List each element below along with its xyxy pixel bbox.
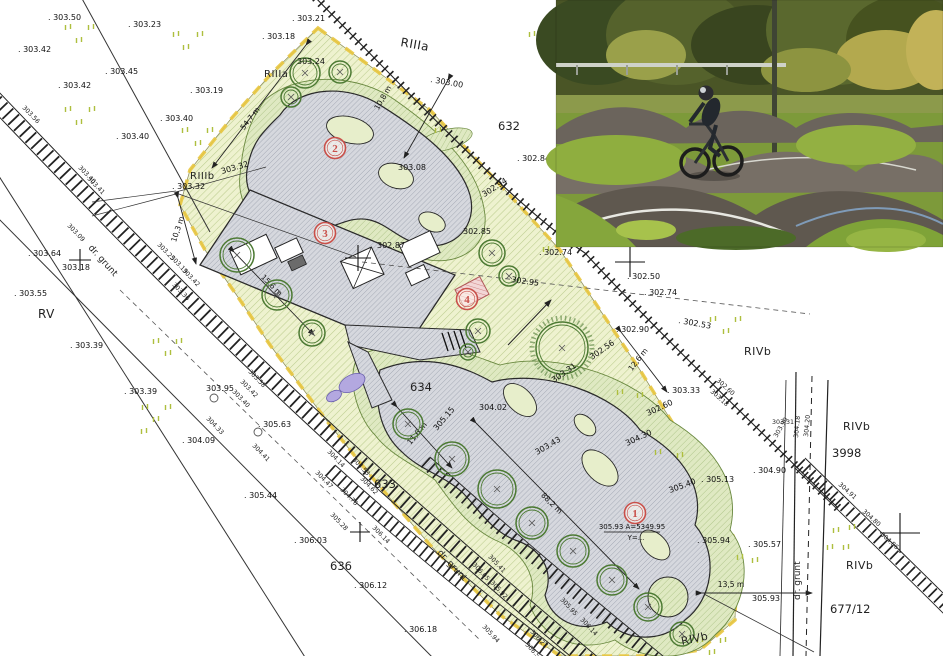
elevation-label: 303.18: [62, 263, 90, 272]
grass-tuft: [736, 316, 741, 322]
elevation-label: . 302.74: [539, 248, 572, 257]
parcel-number-label: 633: [374, 477, 396, 491]
photo-shadow: [676, 226, 796, 250]
zone-label: RIIIa: [399, 35, 430, 54]
elevation-label: 303.95: [206, 384, 234, 393]
elevation-label: . 306.18: [404, 625, 437, 634]
dimension-label: 10,3 m: [169, 215, 186, 243]
elevation-label: . 303.39: [70, 341, 103, 350]
zone-label: RIIIb: [190, 171, 215, 182]
photo-guardrail-post: [676, 65, 678, 75]
elevation-label: . 304.90: [753, 466, 786, 475]
road-elevation-label: 304.91: [837, 481, 858, 501]
elevation-label: . 303.42: [58, 81, 91, 90]
site-plan-svg: 54,7 m10,8 m10,3 m15,6 m11,6 m12,6 m88,2…: [0, 0, 943, 656]
survey-cross: [350, 522, 370, 542]
photo-grass-patch: [796, 125, 916, 165]
elevation-label: . 303.32: [172, 182, 205, 191]
grass-tuft: [196, 140, 201, 146]
elevation-label: 302.85: [463, 227, 491, 236]
grass-tuft: [66, 24, 71, 30]
parcel-number-label: 632: [498, 119, 520, 133]
grass-tuft: [198, 31, 203, 37]
photo-inset: [536, 0, 943, 252]
grass-tuft: [142, 428, 147, 434]
elevation-label: . 303.19: [190, 86, 223, 95]
grass-tuft: [710, 649, 715, 655]
elevation-label: . 306.03: [294, 536, 327, 545]
marker-number: 2: [332, 143, 338, 155]
elevation-label: . 304.09: [182, 436, 215, 445]
zone-label: RV: [38, 307, 55, 321]
grass-tuft: [154, 338, 159, 344]
photo-utility-pole: [772, 0, 777, 172]
road-elevation-label: 303.09: [66, 223, 86, 244]
road-right-line: [820, 380, 828, 656]
photo-grass-highlight: [846, 228, 926, 252]
road-elevation-label: 305.28: [329, 512, 349, 533]
marker-number: 3: [322, 228, 328, 240]
zone-label: RIVb: [846, 559, 873, 572]
road-name-label: dr. grunt: [793, 561, 803, 600]
elevation-label: . 305.57: [748, 540, 781, 549]
photo-guardrail-post: [626, 65, 628, 75]
grass-tuft: [844, 544, 849, 550]
road-elevation-label: 304.18: [793, 416, 802, 439]
elevation-label: . 305.94: [697, 536, 730, 545]
marker-number: 1: [632, 508, 638, 520]
elevation-label: 302.87: [377, 241, 405, 250]
grass-tuft: [721, 637, 726, 643]
grass-tuft: [89, 24, 94, 30]
photo-grass-highlight: [616, 220, 676, 240]
grass-tuft: [90, 106, 95, 112]
cyclist-helmet: [699, 86, 714, 101]
site-plan-page: 54,7 m10,8 m10,3 m15,6 m11,6 m12,6 m88,2…: [0, 0, 943, 656]
benchmark-annotation-line2: Y=...: [627, 534, 645, 542]
elevation-label: . 306.12: [354, 581, 387, 590]
elevation-label: . 302.74: [644, 288, 677, 297]
elevation-label: . 302.90: [616, 325, 649, 334]
grass-tuft: [828, 544, 833, 550]
elevation-label: . 303.45: [105, 67, 138, 76]
road-f-edge: [795, 468, 943, 615]
elevation-label: . 303.55: [14, 289, 47, 298]
grass-tuft: [177, 338, 182, 344]
grass-tuft: [77, 37, 82, 43]
photo-guardrail-post: [726, 65, 728, 75]
zone-label: RIIIa: [264, 69, 288, 80]
photo-guardrail: [556, 63, 786, 67]
elevation-label: 303.08: [398, 163, 426, 172]
grass-tuft: [166, 350, 171, 356]
cyclist-helmet-highlight: [700, 87, 706, 93]
elevation-label: . 303.50: [48, 13, 81, 22]
elevation-label: . 303.33: [667, 386, 700, 395]
elevation-label: . 305.63: [258, 420, 291, 429]
road-right-line: [793, 372, 796, 656]
elevation-label: 305.93: [752, 594, 780, 603]
track-loop-hole: [648, 577, 688, 617]
grass-tuft: [208, 127, 213, 133]
road-elevation-label: 303.36: [171, 282, 191, 303]
elevation-label: 303.24: [297, 57, 325, 66]
photo-grass-patch: [546, 135, 686, 185]
photo-guardrail-post: [576, 65, 578, 75]
grass-tuft: [184, 44, 189, 50]
grass-tuft: [724, 328, 729, 334]
road-elevation-label: 305.94: [481, 624, 501, 645]
elevation-label: . 302.53: [678, 316, 712, 331]
point-symbol: [210, 394, 218, 402]
road-elevation-label: 306.14: [371, 525, 391, 546]
zone-label: RIVb: [843, 420, 870, 433]
zone-label: RIVb: [744, 345, 771, 358]
point-symbol: [254, 428, 262, 436]
parcel-number-label: 3998: [832, 446, 861, 460]
grass-tuft: [834, 527, 839, 533]
elevation-label: . 303.40: [116, 132, 149, 141]
elevation-label: . 303.21: [292, 14, 325, 23]
elevation-label: . 303.00: [430, 75, 464, 90]
grass-tuft: [66, 106, 71, 112]
grass-tuft: [753, 557, 758, 563]
elevation-label: . 305.44: [244, 491, 277, 500]
dimension-label: 13,5 m: [718, 580, 744, 589]
road-elevation-label: 304.33: [205, 416, 225, 437]
road-elevation-label: 304.41: [251, 443, 271, 464]
grass-tuft: [166, 404, 171, 410]
photo-autumn-foliage: [606, 30, 686, 80]
elevation-label: . 303.23: [128, 20, 161, 29]
marker-number: 4: [464, 294, 470, 306]
grass-tuft: [174, 31, 179, 37]
road-elevation-label: 303.42: [181, 268, 201, 289]
benchmark-annotation-line1: 305.93 A=5349.95: [599, 523, 665, 531]
elevation-label: . 303.42: [18, 45, 51, 54]
elevation-label: . 303.39: [124, 387, 157, 396]
parcel-number-label: 634: [410, 380, 432, 394]
elevation-label: 304.02: [479, 403, 507, 412]
elevation-label: . 302.84: [517, 154, 550, 163]
road-elevation-label: 304.80: [861, 508, 882, 528]
grass-tuft: [530, 31, 535, 37]
parcel-number-label: 636: [330, 559, 352, 573]
grass-tuft: [183, 127, 188, 133]
elevation-label: . 303.18: [262, 32, 295, 41]
parcel-number-label: 677/12: [830, 602, 870, 616]
elevation-label: . 303.64: [28, 249, 61, 258]
road-name-label: dr. grunt: [86, 243, 120, 279]
elevation-label: . 302.50: [627, 272, 660, 281]
elevation-label: . 305.13: [701, 475, 734, 484]
grass-tuft: [77, 119, 82, 125]
elevation-label: . 303.40: [160, 114, 193, 123]
